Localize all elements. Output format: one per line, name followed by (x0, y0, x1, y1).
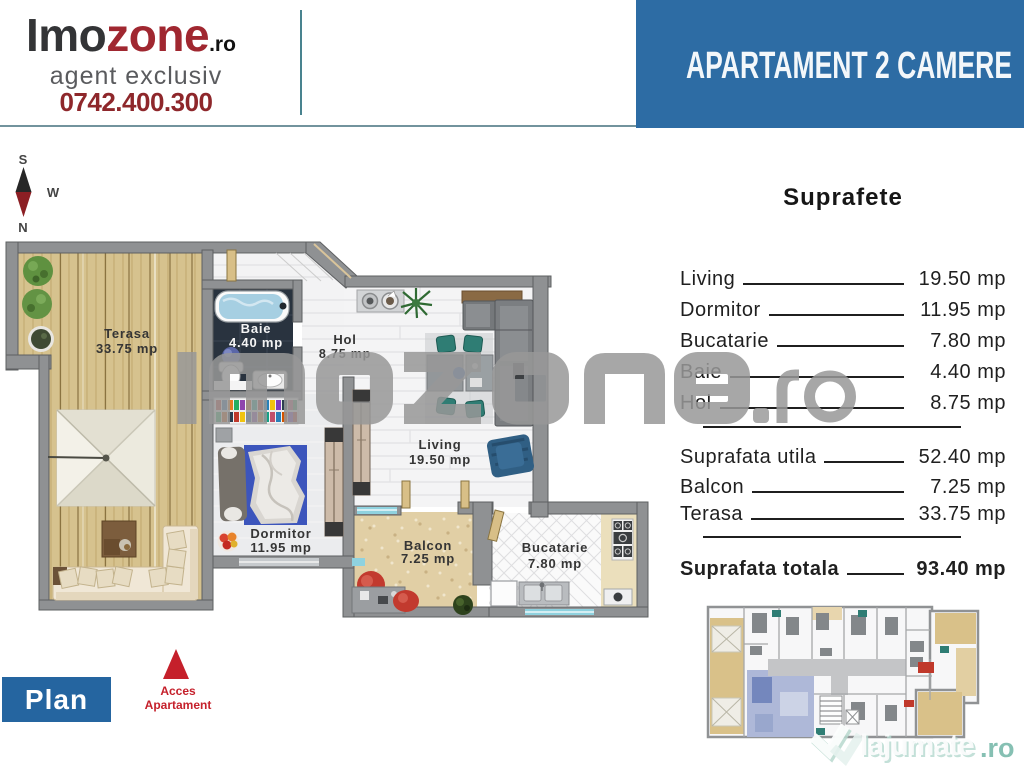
svg-text:.ro: .ro (980, 733, 1015, 763)
svg-text:7.25 mp: 7.25 mp (401, 551, 455, 566)
svg-text:lajumate: lajumate (860, 729, 974, 762)
svg-text:33.75 mp: 33.75 mp (96, 341, 158, 356)
svg-text:Dormitor: Dormitor (250, 526, 311, 541)
svg-text:11.95 mp: 11.95 mp (250, 540, 311, 555)
svg-text:Terasa: Terasa (104, 326, 150, 341)
svg-text:Bucatarie: Bucatarie (522, 540, 588, 555)
svg-text:Hol: Hol (333, 332, 356, 347)
svg-text:19.50 mp: 19.50 mp (409, 452, 471, 467)
svg-text:S: S (19, 152, 28, 167)
svg-text:4.40 mp: 4.40 mp (229, 335, 283, 350)
svg-text:Living: Living (418, 437, 461, 452)
svg-text:W: W (47, 185, 60, 200)
svg-text:7.80 mp: 7.80 mp (528, 556, 582, 571)
svg-text:Baie: Baie (241, 321, 272, 336)
svg-text:N: N (18, 220, 27, 235)
